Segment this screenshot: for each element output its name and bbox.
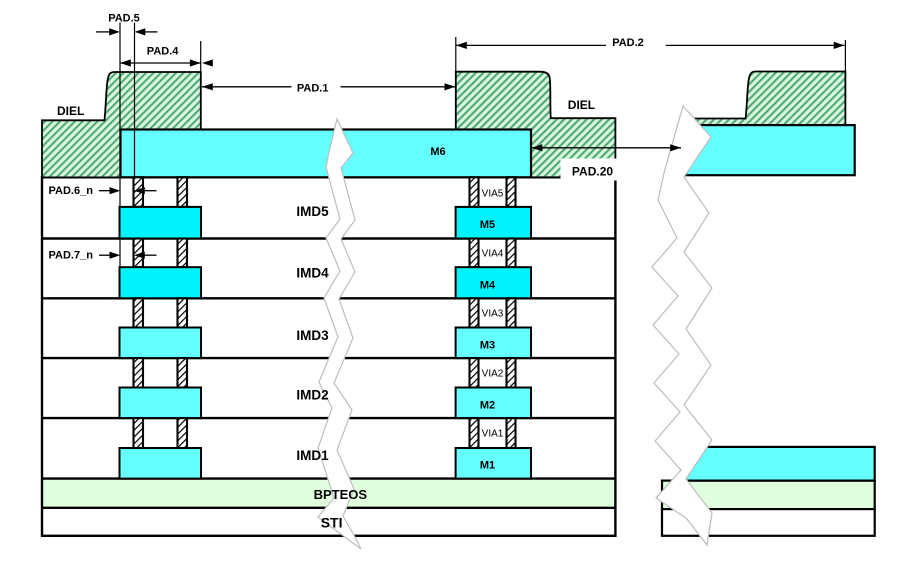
svg-text:IMD1: IMD1 (296, 448, 329, 463)
svg-text:IMD2: IMD2 (296, 388, 328, 403)
svg-text:VIA1: VIA1 (482, 429, 504, 440)
svg-text:M4: M4 (480, 279, 496, 291)
svg-text:IMD5: IMD5 (296, 204, 329, 219)
svg-text:IMD4: IMD4 (296, 266, 329, 281)
svg-text:M6: M6 (430, 146, 445, 158)
svg-text:VIA2: VIA2 (482, 369, 504, 380)
svg-text:DIEL: DIEL (568, 98, 595, 112)
svg-text:STI: STI (321, 515, 343, 531)
svg-text:DIEL: DIEL (57, 104, 84, 118)
svg-text:IMD3: IMD3 (296, 328, 329, 343)
svg-text:PAD.1: PAD.1 (297, 83, 329, 95)
svg-text:PAD.20: PAD.20 (572, 165, 613, 179)
svg-text:VIA5: VIA5 (482, 189, 504, 200)
svg-text:M1: M1 (480, 460, 495, 472)
svg-text:PAD.2: PAD.2 (612, 37, 644, 49)
svg-text:BPTEOS: BPTEOS (314, 487, 368, 502)
svg-text:PAD.7_n: PAD.7_n (49, 250, 94, 262)
svg-text:M5: M5 (480, 219, 495, 231)
svg-text:VIA3: VIA3 (482, 309, 504, 320)
svg-text:M2: M2 (480, 399, 495, 411)
svg-text:PAD.5: PAD.5 (108, 13, 140, 25)
svg-text:VIA4: VIA4 (482, 249, 504, 260)
svg-text:PAD.6_n: PAD.6_n (49, 185, 94, 197)
svg-text:M3: M3 (480, 339, 495, 351)
svg-text:PAD.4: PAD.4 (147, 46, 179, 58)
